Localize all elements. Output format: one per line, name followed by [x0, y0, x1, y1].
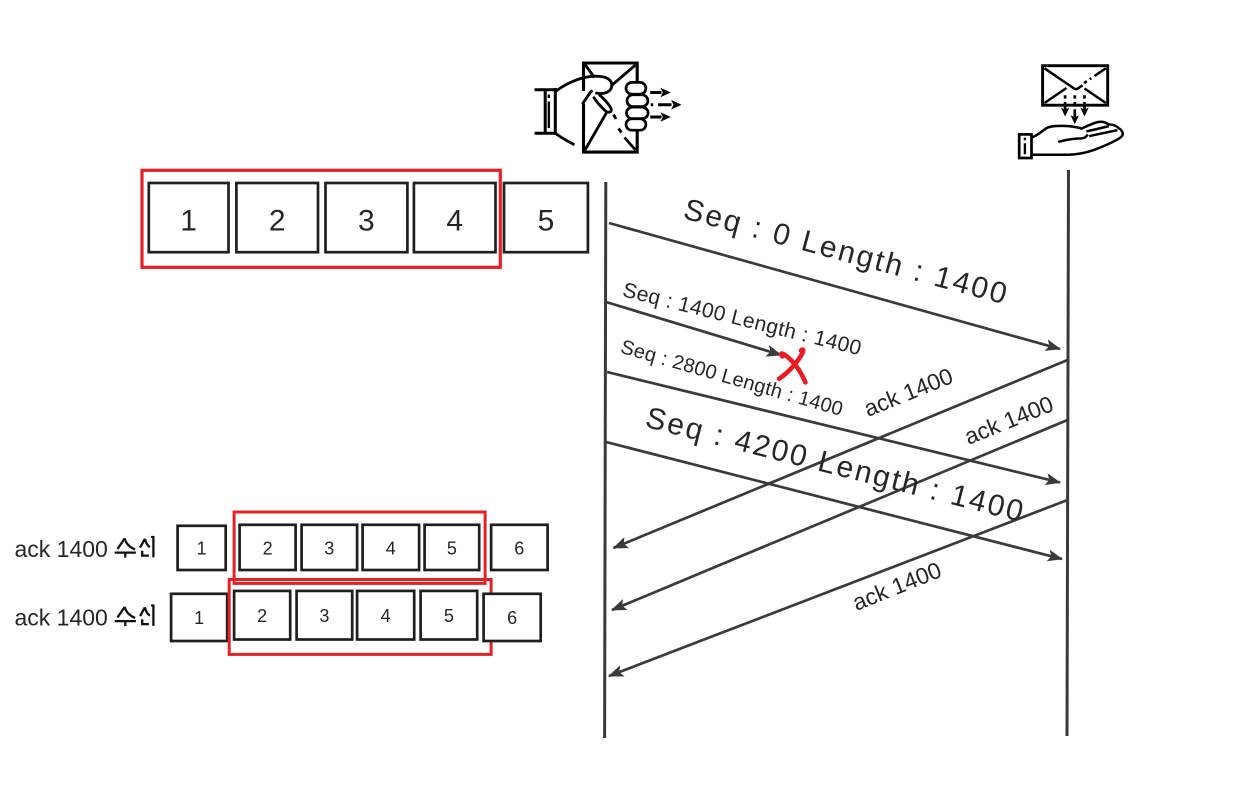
svg-text:4: 4	[386, 538, 396, 558]
svg-text:1: 1	[197, 538, 207, 558]
svg-text:4: 4	[446, 205, 463, 238]
svg-text:3: 3	[319, 606, 329, 626]
svg-text:2: 2	[263, 538, 273, 558]
svg-text:5: 5	[444, 606, 454, 626]
svg-text:1: 1	[180, 205, 197, 238]
svg-text:1: 1	[194, 608, 204, 628]
svg-text:2: 2	[257, 606, 267, 626]
svg-text:ack 1400: ack 1400	[15, 605, 108, 631]
svg-text:ack 1400: ack 1400	[15, 536, 108, 562]
svg-text:3: 3	[358, 205, 375, 238]
svg-text:3: 3	[324, 538, 334, 558]
svg-text:5: 5	[447, 538, 457, 558]
svg-text:5: 5	[538, 205, 555, 238]
svg-text:6: 6	[507, 608, 517, 628]
svg-text:6: 6	[514, 538, 524, 558]
svg-text:4: 4	[381, 606, 391, 626]
svg-text:2: 2	[269, 205, 286, 238]
